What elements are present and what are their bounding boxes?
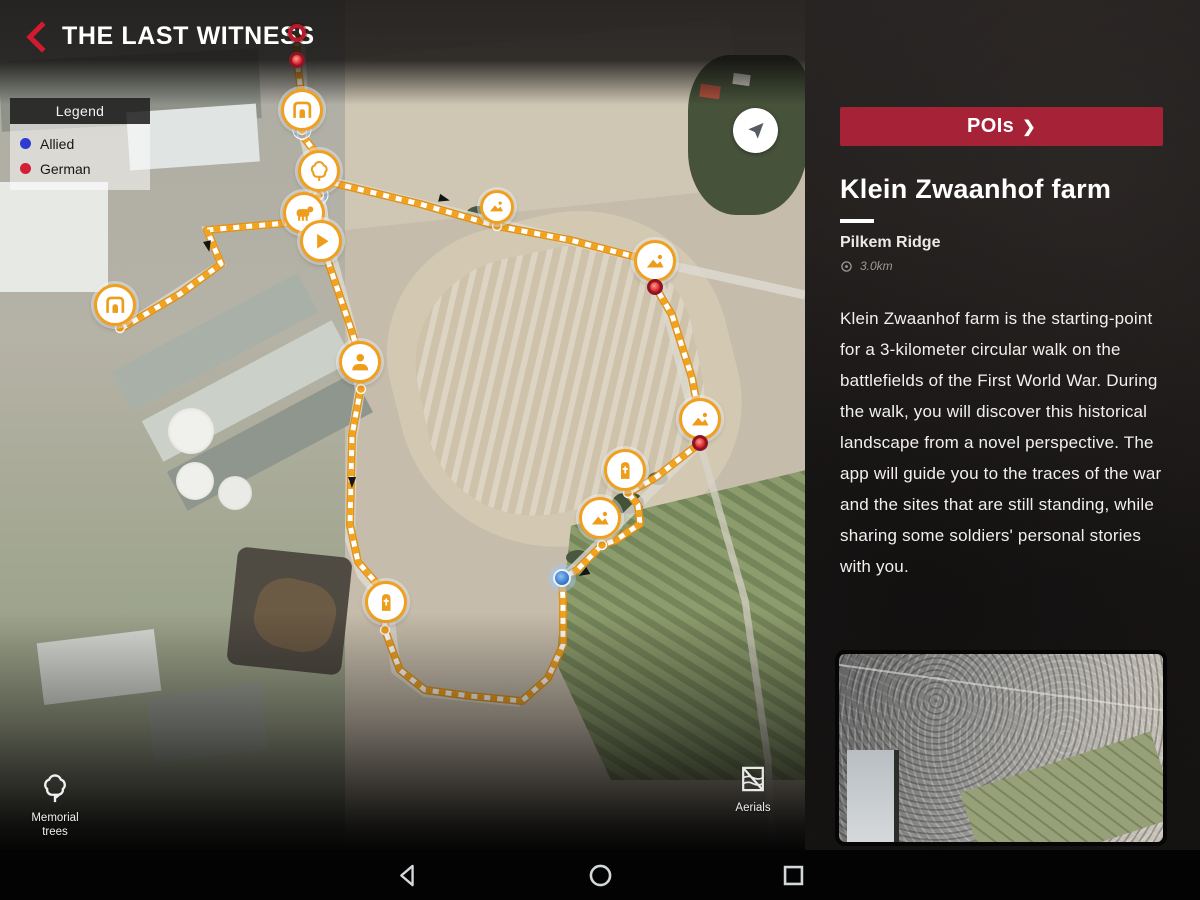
page-title: THE LAST WITNESS — [62, 22, 315, 51]
android-navigation-bar — [0, 850, 1200, 900]
pois-button[interactable]: POIs ❯ — [840, 107, 1163, 146]
photo-detail — [847, 750, 899, 842]
photo-detail — [960, 731, 1167, 846]
legend-item-german: German — [20, 156, 140, 181]
photo-icon — [688, 407, 712, 431]
chevron-right-icon: ❯ — [1022, 117, 1036, 137]
arch-icon — [290, 98, 314, 122]
marker-red-dot[interactable] — [647, 279, 663, 295]
marker-play[interactable] — [300, 220, 342, 262]
poi-title: Klein Zwaanhof farm — [840, 175, 1163, 204]
marker-photo[interactable] — [579, 497, 621, 539]
distance-target-icon — [840, 260, 853, 273]
photo-icon — [588, 506, 612, 530]
title-divider — [840, 219, 874, 223]
poi-panel: POIs ❯ Klein Zwaanhof farm Pilkem Ridge … — [805, 0, 1200, 850]
android-recents-button[interactable] — [780, 862, 807, 889]
poi-distance-row: 3.0km — [840, 259, 1163, 273]
arch-icon — [103, 293, 127, 317]
poi-subtitle: Pilkem Ridge — [840, 234, 1163, 252]
allied-dot-icon — [20, 138, 31, 149]
legend-label: German — [40, 161, 91, 177]
marker-red-dot[interactable] — [289, 52, 305, 68]
marker-photo[interactable] — [480, 190, 514, 224]
german-dot-icon — [20, 163, 31, 174]
memorial-tree-icon — [39, 772, 71, 806]
legend-item-allied: Allied — [20, 131, 140, 156]
memorial-trees-label: Memorial trees — [18, 811, 92, 840]
play-icon — [309, 229, 333, 253]
legend-title: Legend — [10, 98, 150, 124]
aerials-label: Aerials — [735, 801, 770, 815]
grave-icon — [613, 458, 637, 482]
marker-tree[interactable] — [298, 150, 340, 192]
tree-icon — [307, 159, 331, 183]
marker-red-ring — [288, 24, 306, 42]
aerials-button[interactable]: Aerials — [716, 762, 790, 815]
marker-red-dot[interactable] — [692, 435, 708, 451]
navigation-arrow-icon — [743, 118, 769, 144]
poi-distance-value: 3.0km — [860, 259, 893, 273]
android-back-button[interactable] — [394, 862, 421, 889]
photo-icon — [487, 197, 506, 216]
historical-aerial-photo[interactable] — [835, 650, 1167, 846]
marker-photo[interactable] — [679, 398, 721, 440]
app-screen: THE LAST WITNESS To start Legend Allied … — [0, 0, 1200, 900]
marker-grave[interactable] — [365, 581, 407, 623]
legend-body: Allied German — [10, 124, 150, 190]
marker-person[interactable] — [339, 341, 381, 383]
grave-icon — [374, 590, 398, 614]
person-icon — [348, 350, 372, 374]
marker-grave[interactable] — [604, 449, 646, 491]
photo-icon — [643, 249, 667, 273]
aerials-map-icon — [737, 762, 769, 796]
legend: Legend Allied German — [10, 98, 150, 190]
marker-arch[interactable] — [281, 89, 323, 131]
marker-arch[interactable] — [94, 284, 136, 326]
map-orientation-button[interactable] — [733, 108, 778, 153]
memorial-trees-button[interactable]: Memorial trees — [18, 772, 92, 840]
android-home-button[interactable] — [587, 862, 614, 889]
pois-button-label: POIs — [967, 115, 1014, 138]
legend-label: Allied — [40, 136, 74, 152]
back-chevron-icon[interactable] — [20, 20, 54, 56]
poi-description: Klein Zwaanhof farm is the starting-poin… — [840, 303, 1163, 582]
photo-detail — [835, 663, 1167, 723]
marker-blue-dot[interactable] — [553, 569, 571, 587]
marker-photo[interactable] — [634, 240, 676, 282]
